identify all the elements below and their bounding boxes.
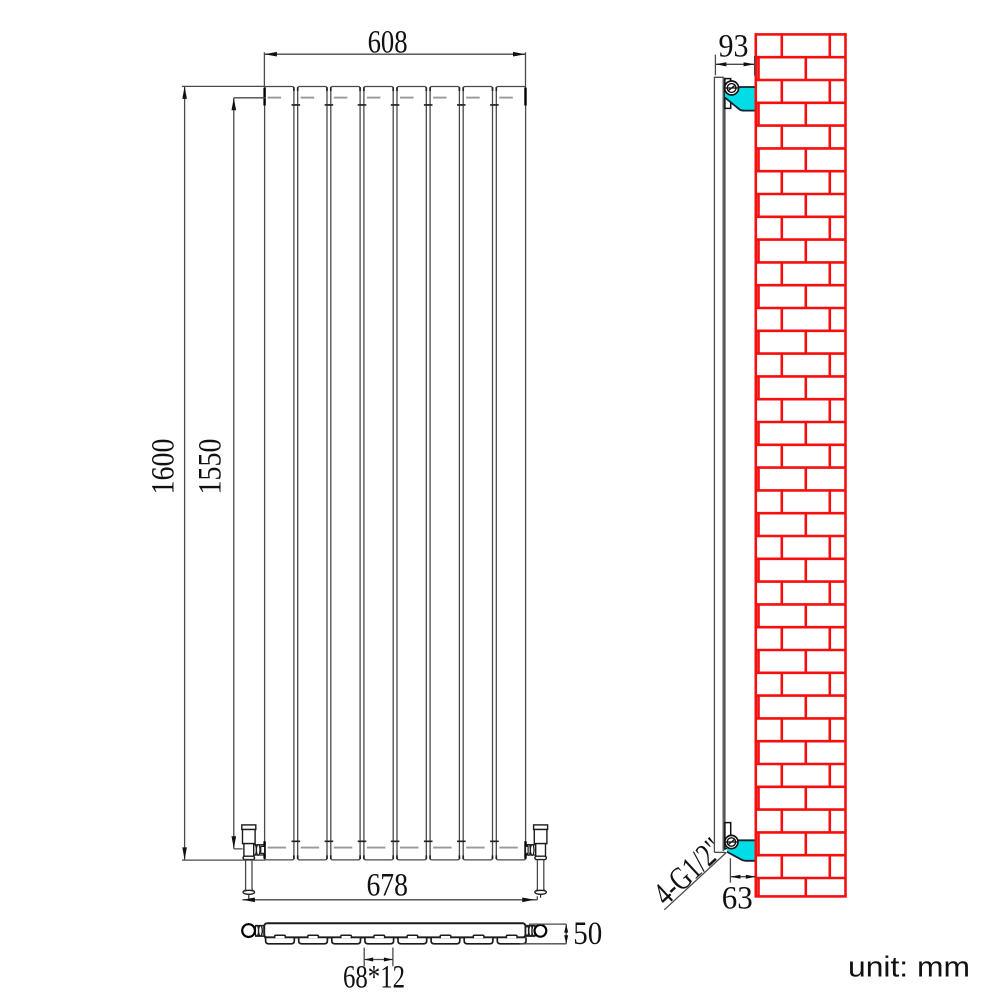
svg-text:63: 63 bbox=[722, 881, 753, 917]
svg-text:unit: mm: unit: mm bbox=[848, 952, 970, 984]
svg-text:1550: 1550 bbox=[193, 439, 229, 495]
svg-text:1600: 1600 bbox=[146, 439, 182, 495]
svg-text:50: 50 bbox=[573, 916, 602, 952]
svg-text:68*12: 68*12 bbox=[343, 960, 405, 996]
svg-text:93: 93 bbox=[719, 29, 749, 65]
svg-text:608: 608 bbox=[368, 24, 408, 60]
svg-text:678: 678 bbox=[366, 868, 408, 904]
